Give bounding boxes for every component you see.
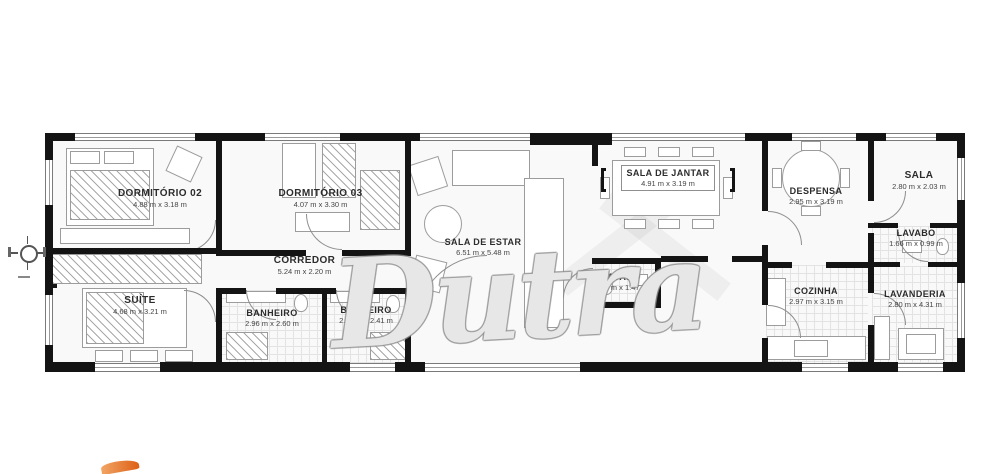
- window: [45, 160, 53, 205]
- compass-tick: [27, 236, 28, 244]
- room-dims: 2.80 m x 4.31 m: [870, 300, 960, 309]
- room-dims: 2.97 m x 3.15 m: [768, 297, 864, 306]
- chair: [801, 141, 821, 151]
- wall-segment: [216, 290, 222, 363]
- room-name: SUÍTE: [80, 295, 200, 306]
- compass-mark: [8, 247, 11, 257]
- window: [792, 133, 856, 141]
- window: [898, 363, 943, 372]
- window: [45, 295, 53, 345]
- label-bracket-left: [601, 168, 606, 192]
- room-dims: 4.07 m x 3.30 m: [248, 200, 393, 209]
- wall-segment: [580, 362, 802, 372]
- window: [95, 363, 160, 372]
- room-label-sala: SALA 2.80 m x 2.03 m: [878, 170, 960, 191]
- cabinet: [95, 350, 123, 362]
- room-name: COZINHA: [768, 286, 864, 296]
- room-label-cozinha: COZINHA 2.97 m x 3.15 m: [768, 286, 864, 306]
- wall-segment: [530, 133, 612, 145]
- compass-tick: [27, 262, 28, 270]
- room-label-lavabo-2: LAVABO 1.66 m x 0.99 m: [872, 228, 960, 248]
- chair: [772, 168, 782, 188]
- cabinet: [165, 350, 193, 362]
- window: [265, 133, 340, 141]
- chair: [801, 206, 821, 216]
- room-dims: 2.95 m x 3.19 m: [766, 197, 866, 206]
- wall-segment: [957, 133, 965, 158]
- wall-segment: [45, 248, 216, 254]
- wardrobe-closet: [52, 254, 202, 284]
- room-dims: 2.96 m x 2.60 m: [226, 319, 318, 328]
- compass-mark: [43, 247, 46, 257]
- wall-segment: [856, 133, 886, 141]
- chair: [840, 168, 850, 188]
- window: [802, 363, 848, 372]
- wall-segment: [957, 338, 965, 372]
- room-label-dormitorio-02: DORMITÓRIO 02 4.88 m x 3.18 m: [80, 188, 240, 209]
- shower: [226, 332, 268, 360]
- room-name: DORMITÓRIO 03: [248, 188, 393, 199]
- room-name: SALA DE JANTAR: [626, 168, 709, 178]
- sofa: [452, 150, 530, 186]
- room-name: LAVANDERIA: [870, 289, 960, 299]
- wall-segment: [45, 345, 53, 372]
- room-dims: 4.68 m x 3.21 m: [80, 307, 200, 316]
- wall-segment: [592, 141, 598, 166]
- dining-chair: [692, 147, 714, 157]
- wall-segment: [732, 256, 762, 262]
- wall-segment: [868, 262, 900, 267]
- stove: [794, 340, 828, 357]
- room-dims: 4.91 m x 3.19 m: [626, 179, 709, 188]
- room-label-banheiro-1: BANHEIRO 2.96 m x 2.60 m: [226, 308, 318, 328]
- room-dims: 4.88 m x 3.18 m: [80, 200, 240, 209]
- logo-fragment: [100, 458, 139, 474]
- floor-plan-image: DORMITÓRIO 02 4.88 m x 3.18 m DORMITÓRIO…: [0, 0, 1000, 474]
- label-box: SALA DE JANTAR 4.91 m x 3.19 m: [621, 165, 714, 191]
- room-name: LAVABO: [872, 228, 960, 238]
- compass-tick: [10, 252, 18, 254]
- wall-segment: [928, 262, 958, 267]
- washer: [906, 334, 936, 354]
- wall-segment: [45, 133, 53, 160]
- room-name: DESPENSA: [766, 186, 866, 196]
- wall-segment: [762, 262, 792, 268]
- room-name: BANHEIRO: [226, 308, 318, 318]
- room-label-dormitorio-03: DORMITÓRIO 03 4.07 m x 3.30 m: [248, 188, 393, 209]
- window: [75, 133, 195, 141]
- wall-segment: [195, 133, 265, 141]
- compass-icon: [20, 245, 38, 263]
- wall-segment: [826, 262, 868, 268]
- room-label-suite: SUÍTE 4.68 m x 3.21 m: [80, 295, 200, 316]
- room-label-despensa: DESPENSA 2.95 m x 3.19 m: [766, 186, 866, 206]
- room-label-lavanderia: LAVANDERIA 2.80 m x 4.31 m: [870, 289, 960, 309]
- wall-segment: [848, 362, 898, 372]
- wall-segment: [868, 141, 874, 201]
- label-bracket-right: [730, 168, 735, 192]
- window: [886, 133, 936, 141]
- watermark-text: Dutra: [305, 217, 731, 373]
- room-name: DORMITÓRIO 02: [80, 188, 240, 199]
- dining-chair: [658, 147, 680, 157]
- room-name: SALA: [878, 170, 960, 181]
- wall-segment: [45, 284, 57, 288]
- wall-segment: [745, 133, 792, 141]
- scale-mark: [18, 276, 30, 278]
- wall-segment: [762, 338, 768, 363]
- dining-chair: [624, 147, 646, 157]
- wall-segment: [868, 325, 874, 363]
- pillow: [70, 151, 100, 164]
- room-dims: 1.66 m x 0.99 m: [872, 239, 960, 248]
- room-label-sala-de-jantar: SALA DE JANTAR 4.91 m x 3.19 m: [606, 165, 730, 191]
- pillow: [104, 151, 134, 164]
- room-dims: 2.80 m x 2.03 m: [878, 182, 960, 191]
- cabinet: [130, 350, 158, 362]
- dresser: [60, 228, 190, 244]
- wall-segment: [216, 288, 246, 294]
- window: [420, 133, 530, 141]
- window: [612, 133, 745, 141]
